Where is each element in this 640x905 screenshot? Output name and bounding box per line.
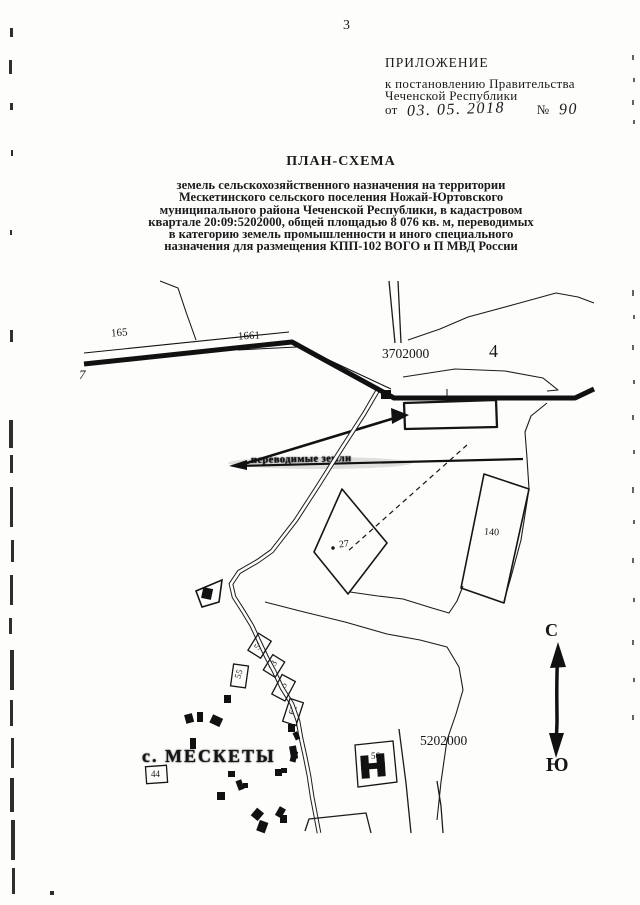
grid-coordinate-y: 5202000 [420, 733, 467, 749]
plot-59-label: 59 [252, 638, 265, 651]
parcel-140-outline [461, 474, 529, 603]
grid-coordinate-x: 3702000 [382, 346, 429, 362]
scanned-document-page: 3 ПРИЛОЖЕНИЕ к постановлению Правительст… [0, 0, 640, 905]
plot-63-label: 63 [266, 659, 279, 672]
quarter-number: 4 [489, 341, 498, 362]
title-block: ПЛАН-СХЕМА земель сельскохозяйственного … [41, 154, 640, 253]
number-sign: № [537, 102, 550, 117]
village-name-label: с. МЕСКЕТЫ [142, 746, 276, 767]
plot-55-label: 55 [232, 668, 244, 680]
main-road-line [84, 332, 594, 399]
transfer-arrowhead-icon [391, 408, 409, 424]
date-row: от 03. 05. 2018 № 90 [385, 103, 578, 116]
compass-north-label: С [545, 620, 558, 641]
document-title: ПЛАН-СХЕМА [41, 154, 640, 170]
handwritten-number: 90 [559, 103, 578, 117]
parcel-27-label: 27 [338, 539, 349, 551]
plan-schema-map [0, 0, 640, 905]
handwritten-date: 03. 05. 2018 [407, 101, 505, 117]
plot-56-label: 56 [371, 751, 380, 761]
plot-44-label: 44 [151, 769, 160, 779]
transfer-parcel-outline [404, 400, 497, 429]
appendix-heading: ПРИЛОЖЕНИЕ [385, 56, 489, 69]
subtitle-line-6: назначения для размещения КПП-102 ВОГО и… [41, 240, 640, 252]
date-prefix: от [385, 102, 398, 117]
compass-south-label: Ю [546, 754, 569, 777]
plot-62-label: 62 [286, 704, 298, 716]
parcel-outlines [314, 389, 529, 603]
flag-shape-outline [196, 580, 222, 607]
road-marker-7: 7 [79, 367, 86, 383]
road-marker-1661: 1661 [238, 329, 261, 342]
plot-45-label: 45 [276, 681, 289, 693]
transfer-lands-label: переводимые земли [251, 453, 352, 466]
parcel-27-outline [314, 489, 387, 594]
compass-arrow-icon [549, 642, 566, 758]
road-marker-165: 165 [111, 326, 128, 339]
building-marks [184, 587, 386, 833]
dashed-boundary-line [348, 445, 467, 551]
parcel-140-label: 140 [484, 526, 500, 538]
page-number: 3 [343, 18, 350, 34]
subtitle-line-2: Мескетинского сельского поселения Ножай-… [41, 191, 640, 203]
